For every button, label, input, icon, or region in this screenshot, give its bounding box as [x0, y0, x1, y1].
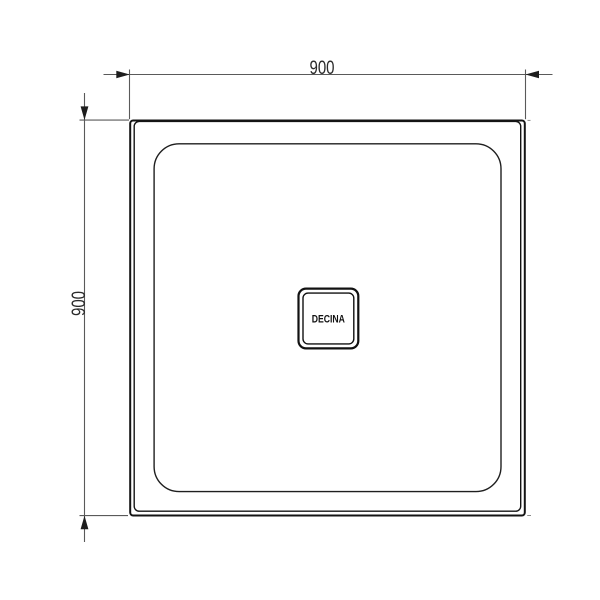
- svg-text:900: 900: [67, 291, 89, 316]
- svg-text:900: 900: [309, 56, 334, 78]
- svg-text:DECINA: DECINA: [312, 314, 345, 326]
